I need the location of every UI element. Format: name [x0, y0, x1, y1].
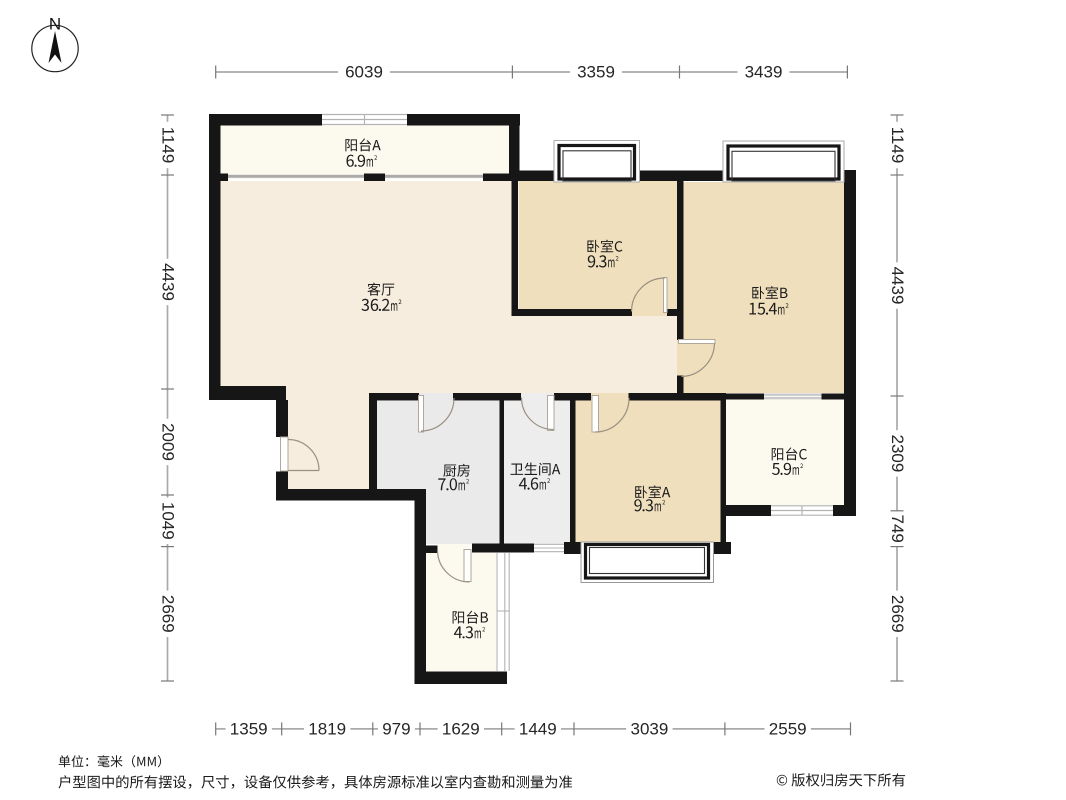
- svg-text:2559: 2559: [769, 719, 807, 738]
- svg-text:979: 979: [382, 719, 410, 738]
- svg-text:1449: 1449: [519, 719, 557, 738]
- svg-text:3039: 3039: [630, 719, 668, 738]
- svg-text:2309: 2309: [888, 434, 907, 472]
- svg-text:749: 749: [888, 515, 907, 543]
- svg-text:1629: 1629: [442, 719, 480, 738]
- svg-text:1819: 1819: [308, 719, 346, 738]
- svg-text:N: N: [49, 15, 61, 34]
- svg-text:3439: 3439: [745, 63, 783, 82]
- svg-text:2009: 2009: [159, 423, 178, 461]
- svg-text:4439: 4439: [159, 263, 178, 301]
- svg-text:2669: 2669: [888, 595, 907, 633]
- svg-text:1149: 1149: [888, 127, 907, 164]
- svg-text:6039: 6039: [345, 63, 383, 82]
- svg-text:1049: 1049: [159, 502, 178, 540]
- svg-text:2669: 2669: [159, 595, 178, 633]
- svg-text:1149: 1149: [159, 127, 178, 164]
- svg-text:1359: 1359: [230, 719, 268, 738]
- svg-text:4439: 4439: [888, 267, 907, 305]
- svg-text:3359: 3359: [577, 63, 615, 82]
